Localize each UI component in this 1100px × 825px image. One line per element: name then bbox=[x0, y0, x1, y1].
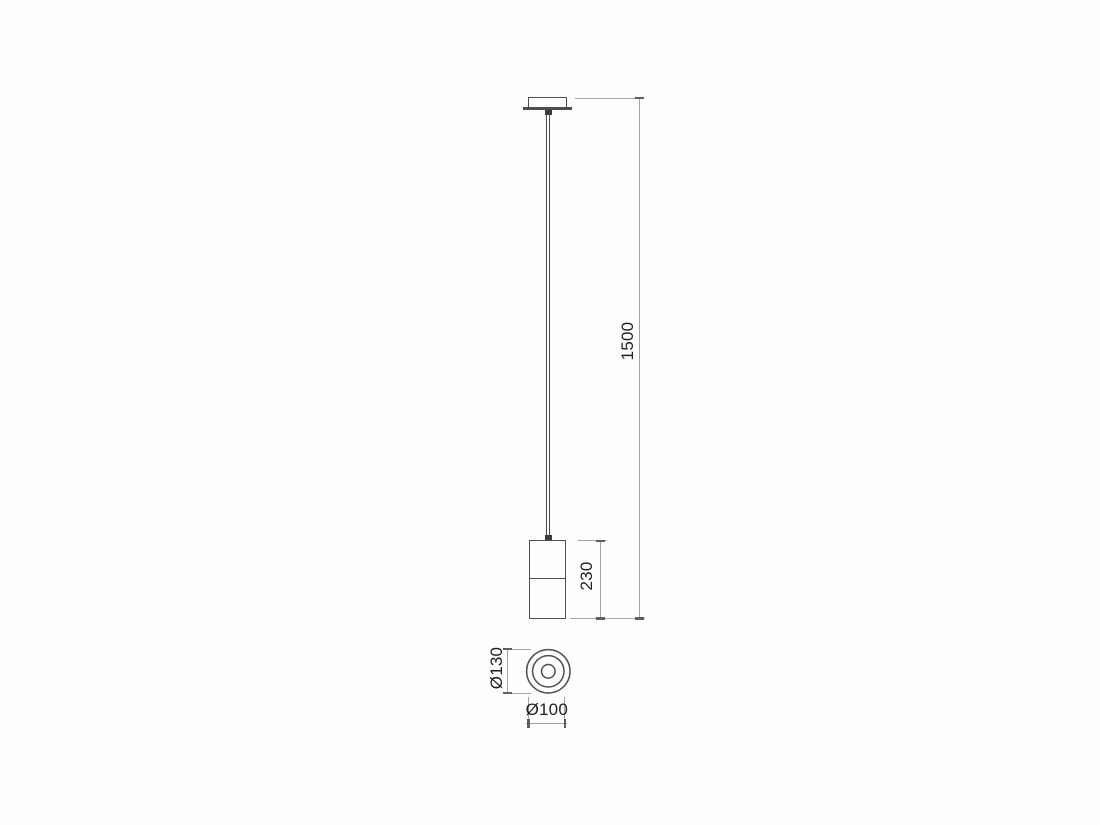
technical-drawing-canvas: 1500 230 Ø130 Ø100 bbox=[0, 0, 1100, 825]
lamp-body-seam-line bbox=[530, 578, 565, 580]
dimension-line-230 bbox=[600, 541, 601, 619]
middle-circle bbox=[533, 656, 564, 687]
tick-1500-top bbox=[635, 97, 644, 99]
extension-line-1500-top bbox=[575, 98, 644, 99]
tick-230-bottom bbox=[596, 617, 605, 619]
inner-circle bbox=[542, 665, 556, 679]
lamp-cylinder-body bbox=[529, 540, 566, 619]
dimension-label-body-diameter: Ø100 bbox=[526, 700, 568, 720]
dimension-line-1500 bbox=[639, 98, 640, 619]
ceiling-canopy-box bbox=[528, 97, 567, 108]
suspension-cable bbox=[546, 114, 551, 535]
dimension-label-body-height: 230 bbox=[577, 562, 597, 591]
dimension-label-outer-diameter: Ø130 bbox=[487, 646, 507, 688]
dimension-line-130 bbox=[507, 649, 508, 694]
tick-100-left bbox=[527, 719, 529, 728]
tick-130-bottom bbox=[503, 692, 512, 694]
dimension-label-overall-drop: 1500 bbox=[618, 322, 638, 361]
tick-1500-bottom bbox=[635, 617, 644, 619]
tick-100-right bbox=[564, 719, 566, 728]
tick-230-top bbox=[596, 540, 605, 542]
dimension-line-100 bbox=[526, 723, 567, 724]
extension-line-bottom-shared bbox=[570, 618, 645, 619]
